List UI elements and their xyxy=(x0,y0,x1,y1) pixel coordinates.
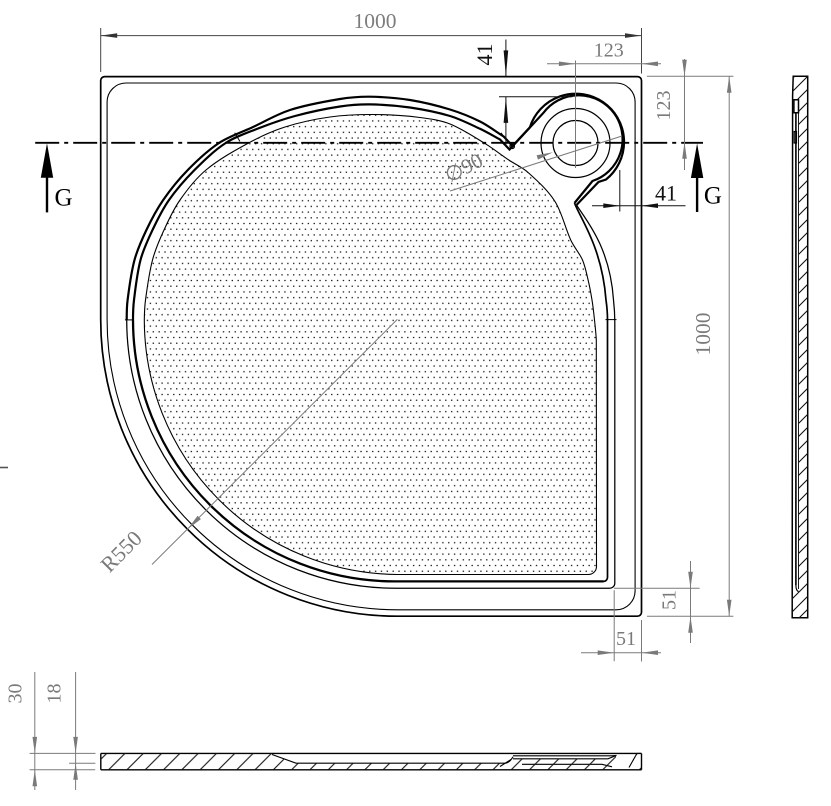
svg-text:30: 30 xyxy=(5,684,27,704)
svg-text:18: 18 xyxy=(44,684,66,704)
svg-text:G: G xyxy=(704,183,722,210)
svg-text:123: 123 xyxy=(653,91,675,121)
svg-text:123: 123 xyxy=(594,40,624,62)
svg-text:1000: 1000 xyxy=(354,9,397,33)
svg-text:51: 51 xyxy=(659,590,681,610)
svg-text:1000: 1000 xyxy=(691,313,715,356)
svg-text:51: 51 xyxy=(616,628,636,650)
svg-text:G: G xyxy=(55,185,73,212)
svg-text:41: 41 xyxy=(655,181,677,206)
svg-text:41: 41 xyxy=(472,44,497,66)
